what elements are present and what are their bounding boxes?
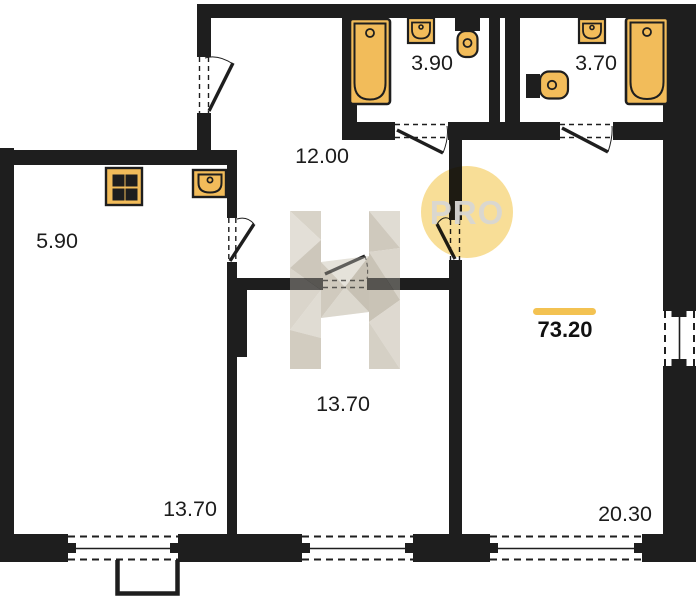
- room-area-label-middle-room: 13.70: [316, 392, 370, 416]
- wall-kitchen-right-upper: [227, 165, 237, 218]
- room-area-label-living-room: 20.30: [598, 502, 652, 526]
- wall-bath-bottom-2: [448, 122, 560, 140]
- wall-right-lower: [663, 366, 696, 562]
- wall-bath-bottom-3: [613, 122, 665, 140]
- room-area-label-bathroom-right: 3.70: [575, 51, 617, 75]
- window-bottom-1: [68, 534, 178, 562]
- room-area-label-hallway: 12.00: [295, 144, 349, 168]
- door-entry: [200, 57, 234, 113]
- wall-living-middle: [449, 260, 462, 534]
- bay-outline: [118, 560, 178, 594]
- wall-bottom-3: [413, 534, 490, 562]
- toilet-icon: [526, 72, 568, 99]
- door-kitchen: [229, 218, 254, 262]
- wall-left: [0, 148, 14, 562]
- door-bathroom-left: [395, 125, 448, 154]
- total-area-underline: [533, 308, 596, 315]
- washbasin-icon: [408, 18, 434, 43]
- h-logo-watermark-overlay: [290, 211, 400, 369]
- wall-shaft-a: [489, 18, 500, 140]
- fixtures: [106, 18, 668, 205]
- door-bathroom-right: [560, 125, 613, 153]
- wall-shaft-b: [505, 18, 520, 140]
- stove-icon: [106, 168, 142, 205]
- wall-bath-bottom-1: [342, 122, 395, 140]
- room-area-label-bathroom-left: 3.90: [411, 51, 453, 75]
- total-area-label: 73.20: [537, 317, 592, 342]
- pro-badge-label: PRO: [430, 194, 505, 231]
- window-bottom-2: [302, 534, 413, 562]
- kitchen-sink-icon: [193, 170, 226, 197]
- window-right-wall: [663, 309, 696, 367]
- wall-pier: [237, 290, 247, 357]
- washbasin-icon: [579, 19, 605, 43]
- floor-plan: PRO 5.90 12.00 3.90 3.70 13.70 13.70 20.…: [0, 0, 696, 600]
- floor-plan-canvas: PRO 5.90 12.00 3.90 3.70 13.70 13.70 20.…: [0, 0, 696, 600]
- wall-bottom-4: [642, 534, 696, 562]
- wall-bottom-2: [178, 534, 302, 562]
- wall-entry-upper: [197, 18, 211, 57]
- bathtub-icon: [350, 19, 390, 104]
- wall-top: [197, 4, 696, 18]
- bathtub-icon: [626, 18, 668, 104]
- wall-entry-lower: [197, 113, 211, 155]
- toilet-icon: [455, 18, 480, 57]
- room-area-label-left-room: 13.70: [163, 497, 217, 521]
- wall-kitchen-right-lower: [227, 262, 237, 534]
- room-area-label-kitchen: 5.90: [36, 229, 78, 253]
- window-bottom-3: [490, 534, 642, 562]
